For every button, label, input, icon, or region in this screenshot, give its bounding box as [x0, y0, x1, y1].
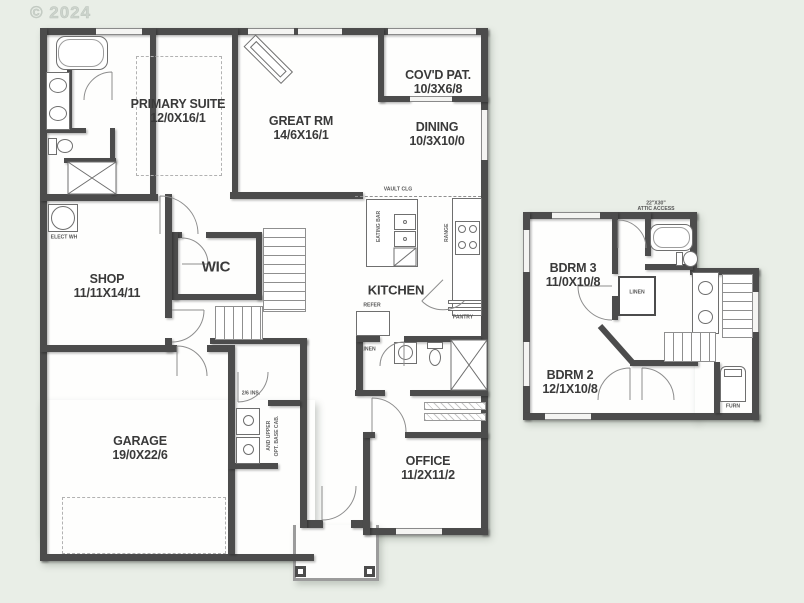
eating-bar-label: EATING BAR: [376, 211, 381, 242]
wall: [378, 96, 410, 102]
door-arc: [618, 220, 646, 248]
stairs: [263, 228, 306, 312]
room-name: KITCHEN: [368, 284, 424, 299]
wall: [752, 268, 759, 420]
bathtub-inner: [653, 227, 690, 248]
drain: [403, 237, 407, 241]
room-label-shop: SHOP 11/11X14/11: [74, 272, 141, 300]
room-label-garage: GARAGE 19/0X22/6: [112, 434, 167, 462]
window: [410, 96, 452, 102]
door-arc: [642, 368, 674, 400]
refrigerator-space: [356, 311, 390, 336]
burner: [469, 241, 477, 249]
sink: [698, 310, 713, 324]
room-name: GREAT RM: [269, 114, 333, 128]
wall: [363, 432, 375, 438]
wall: [356, 336, 363, 394]
window: [396, 528, 442, 535]
wall: [378, 28, 384, 102]
room-dims: 19/0X22/6: [112, 448, 167, 462]
pantry-label: PANTRY: [453, 315, 473, 321]
wall: [410, 390, 488, 396]
refrigerator-label: REFER: [363, 303, 380, 309]
garage-door-outline: [62, 497, 226, 554]
door-arc: [372, 398, 406, 432]
window: [481, 110, 488, 160]
wall: [355, 390, 385, 396]
floor-plan-canvas: © 2024: [0, 0, 804, 603]
room-label-bdrm3: BDRM 3 11/0X10/8: [546, 261, 601, 289]
door-arc: [380, 342, 404, 366]
copyright-watermark: © 2024: [30, 3, 91, 23]
bathtub-inner: [58, 39, 104, 67]
room-label-covd-pat: COV'D PAT. 10/3X6/8: [405, 68, 471, 96]
stairs: [722, 274, 753, 338]
window: [298, 28, 342, 35]
wall: [230, 192, 363, 199]
room-dims: 10/3X10/0: [409, 134, 464, 148]
dryer-door: [243, 444, 254, 455]
toilet: [57, 139, 73, 153]
wall: [207, 345, 228, 352]
stairs: [664, 332, 716, 362]
door-arc: [160, 196, 198, 234]
window: [523, 342, 530, 386]
window: [552, 212, 600, 219]
room-label-kitchen: KITCHEN: [368, 284, 424, 299]
room-dims: 14/6X16/1: [269, 128, 333, 142]
toilet-tank: [676, 252, 683, 266]
water-heater: [51, 206, 75, 230]
room-label-bdrm2: BDRM 2 12/1X10/8: [542, 368, 597, 396]
built-in-cabinet: [424, 402, 486, 410]
room-name: OFFICE: [401, 454, 455, 468]
room-dims: 10/3X6/8: [405, 82, 471, 96]
attic-line1: 22"X30": [646, 201, 666, 206]
toilet: [683, 251, 698, 267]
toilet-tank: [48, 138, 57, 155]
room-dims: 11/2X11/2: [401, 468, 455, 482]
angled-wall: [600, 326, 632, 362]
built-in-cabinet: [424, 413, 486, 421]
room-name: SHOP: [74, 272, 141, 286]
wall: [405, 432, 488, 438]
cabinet-note-upper: AND UPPER: [266, 421, 271, 451]
wall: [307, 520, 323, 528]
room-dims: 11/11X14/11: [74, 286, 141, 300]
stairs: [215, 306, 263, 340]
window: [523, 230, 530, 272]
wall: [356, 336, 380, 342]
porch-post: [364, 566, 375, 577]
wall: [40, 345, 177, 352]
room-label-dining: DINING 10/3X10/0: [409, 120, 464, 148]
sink: [698, 281, 713, 295]
burner: [458, 241, 466, 249]
door-arc: [172, 310, 204, 342]
sink: [49, 78, 67, 93]
front-door-arc: [322, 486, 356, 520]
vault-ceiling-label: VAULT CLG: [384, 187, 412, 193]
closet: [451, 340, 487, 390]
door-arc: [238, 372, 268, 402]
room-dims: 11/0X10/8: [546, 275, 601, 289]
wall: [172, 232, 178, 300]
door-arc: [598, 368, 630, 400]
wall: [256, 232, 262, 300]
room-dims: 12/0X16/1: [131, 111, 226, 125]
sink: [49, 106, 67, 121]
burner: [469, 225, 477, 233]
attic-access-note: 22"X30" ATTIC ACCESS: [637, 201, 674, 213]
door-arc: [84, 72, 112, 100]
wall: [268, 400, 300, 406]
toilet-tank: [427, 342, 443, 349]
room-label-wic: WIC: [202, 260, 231, 277]
dishwasher: [394, 248, 416, 266]
room-name: WIC: [202, 260, 231, 277]
wall: [452, 96, 488, 102]
cabinet-note-base: OPT. BASE CAB.: [274, 416, 279, 457]
room-label-primary-suite: PRIMARY SUITE 12/0X16/1: [131, 97, 226, 125]
room-dims: 12/1X10/8: [542, 382, 597, 396]
window: [96, 28, 142, 35]
linen-label: LINEN: [629, 290, 644, 296]
attic-line2: ATTIC ACCESS: [637, 207, 674, 212]
window: [545, 413, 591, 420]
wall: [300, 338, 307, 528]
drain: [403, 220, 407, 224]
toilet: [429, 349, 441, 366]
room-name: COV'D PAT.: [405, 68, 471, 82]
burner: [458, 225, 466, 233]
door-arc: [177, 346, 207, 376]
fireplace: [234, 32, 304, 102]
water-heater-label: ELECT WH: [51, 235, 78, 241]
room-label-great-rm: GREAT RM 14/6X16/1: [269, 114, 333, 142]
furnace-panel: [724, 369, 742, 377]
wall: [481, 28, 488, 535]
vault-ceiling-line: [355, 196, 481, 197]
window: [388, 28, 476, 35]
door-arc: [578, 286, 612, 320]
window: [752, 292, 759, 332]
wall: [228, 345, 235, 554]
furnace-label: FURN: [726, 404, 740, 410]
porch-post: [295, 566, 306, 577]
linen-label: LINEN: [360, 347, 375, 353]
room-name: BDRM 3: [546, 261, 601, 275]
wall: [40, 194, 158, 201]
washer-door: [243, 415, 254, 426]
room-name: GARAGE: [112, 434, 167, 448]
wall: [172, 294, 262, 300]
room-name: PRIMARY SUITE: [131, 97, 226, 111]
room-name: BDRM 2: [542, 368, 597, 382]
wall: [206, 232, 260, 238]
range-label: RANGE: [444, 224, 449, 242]
room-name: DINING: [409, 120, 464, 134]
wall: [40, 554, 314, 561]
room-label-office: OFFICE 11/2X11/2: [401, 454, 455, 482]
closet: [68, 162, 116, 194]
wall: [363, 432, 370, 535]
